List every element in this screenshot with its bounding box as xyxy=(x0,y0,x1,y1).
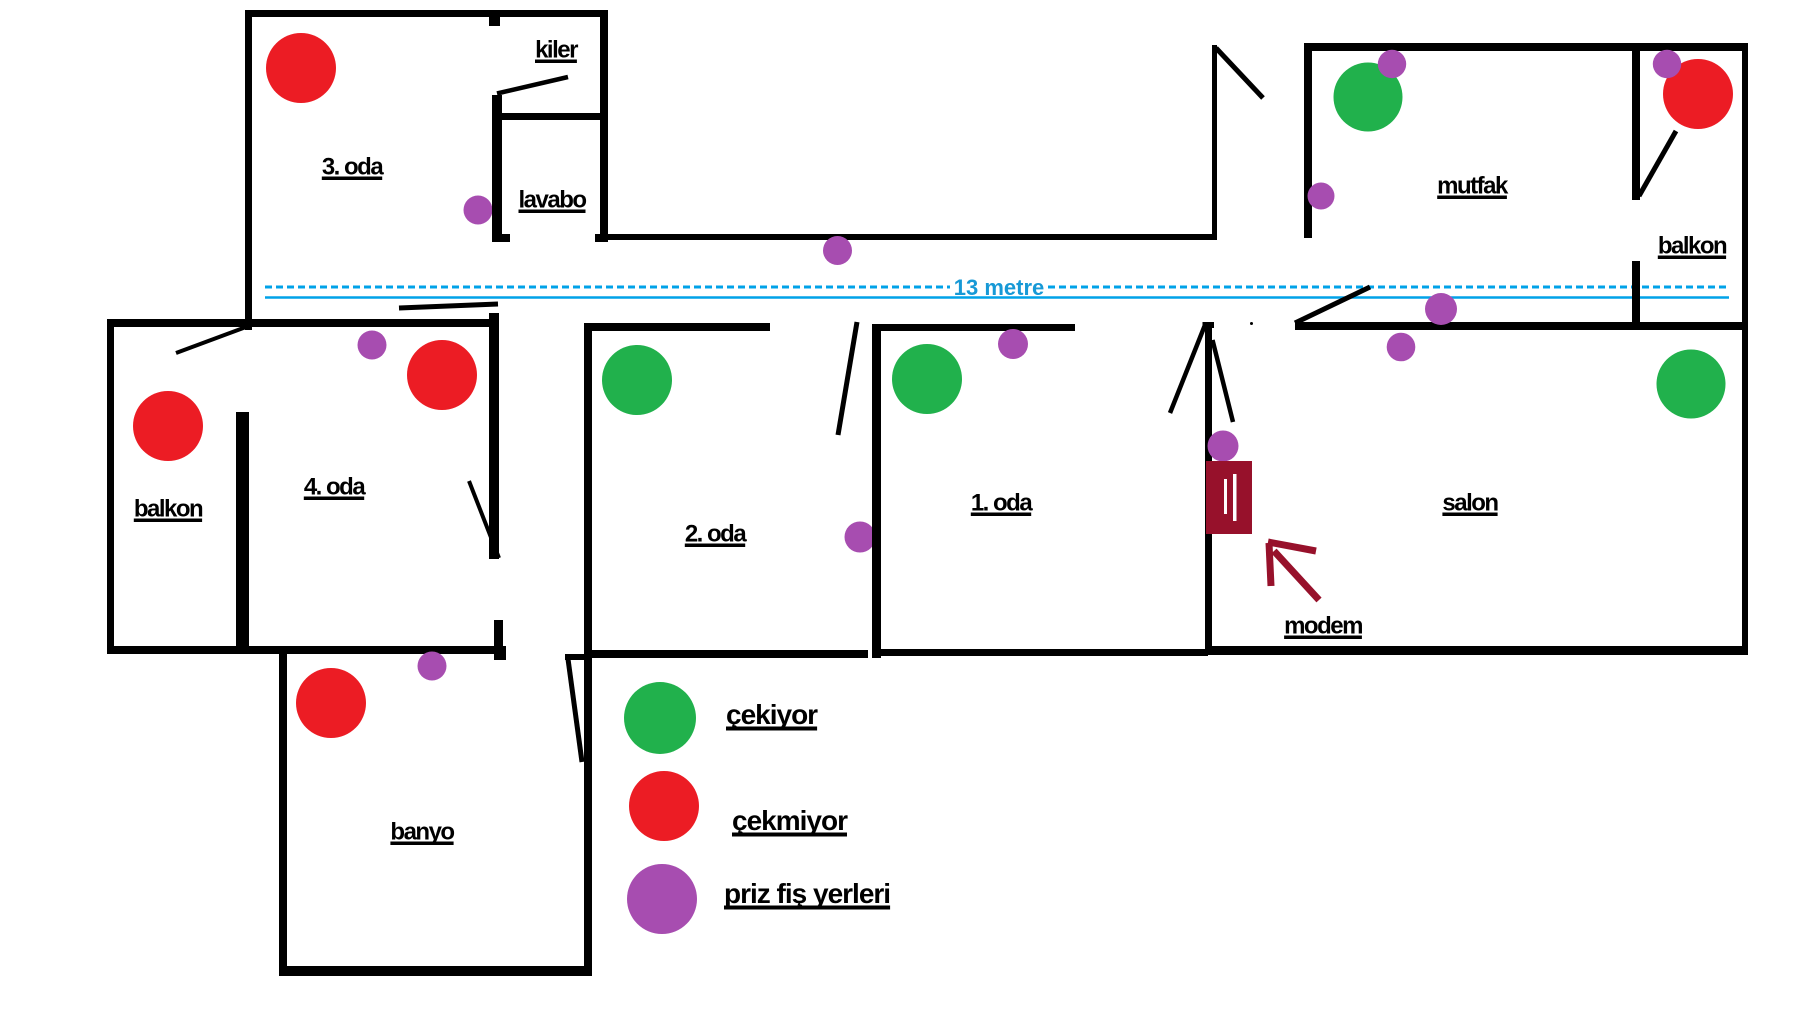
svg-text:priz fiş yerleri: priz fiş yerleri xyxy=(724,878,890,909)
svg-text:1. oda: 1. oda xyxy=(971,490,1034,517)
svg-text:4. oda: 4. oda xyxy=(304,474,367,501)
svg-text:2. oda: 2. oda xyxy=(685,521,748,548)
svg-text:çekiyor: çekiyor xyxy=(726,699,818,730)
svg-text:balkon: balkon xyxy=(1658,233,1727,260)
svg-text:salon: salon xyxy=(1442,490,1498,517)
svg-text:lavabo: lavabo xyxy=(518,187,586,214)
svg-text:modem: modem xyxy=(1284,613,1362,640)
svg-text:balkon: balkon xyxy=(134,496,203,523)
svg-text:banyo: banyo xyxy=(390,819,454,846)
svg-text:kiler: kiler xyxy=(535,37,578,64)
svg-text:çekmiyor: çekmiyor xyxy=(732,805,848,836)
svg-text:mutfak: mutfak xyxy=(1437,173,1509,200)
svg-text:3. oda: 3. oda xyxy=(322,154,385,181)
